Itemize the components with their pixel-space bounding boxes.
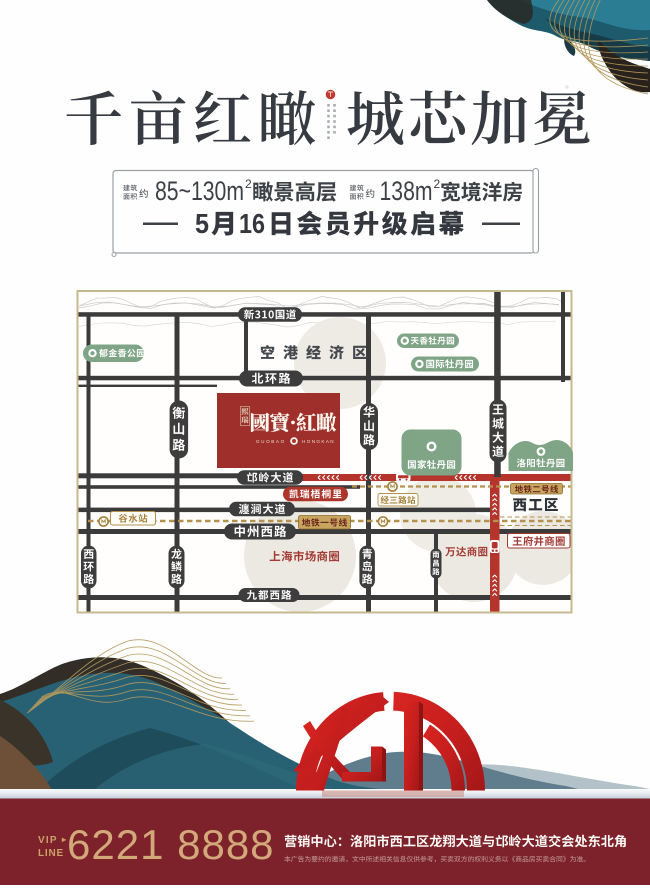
svg-text:16: 16 (239, 208, 265, 239)
svg-text:85~130m: 85~130m (155, 176, 244, 206)
svg-text:138m: 138m (380, 176, 433, 206)
svg-text:GUOBAO: GUOBAO (256, 439, 286, 444)
svg-text:2: 2 (434, 177, 441, 191)
svg-text:HONGKAN: HONGKAN (302, 439, 335, 444)
svg-text:2: 2 (245, 177, 252, 191)
svg-text:6221 8888: 6221 8888 (67, 821, 275, 868)
svg-text:VIP: VIP (38, 835, 58, 846)
svg-text:LINE: LINE (38, 848, 64, 859)
svg-text:5: 5 (195, 208, 209, 239)
